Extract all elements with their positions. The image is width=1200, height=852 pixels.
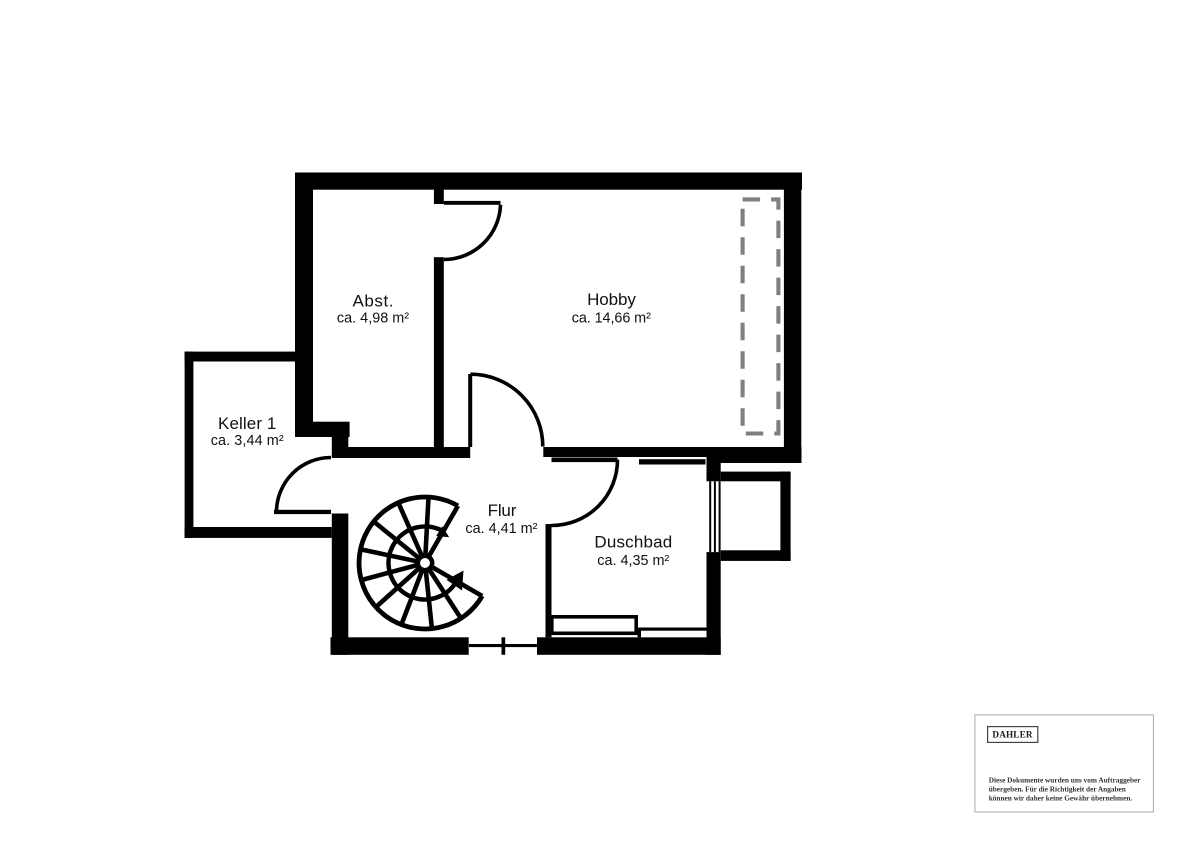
svg-text:ca. 14,66 m²: ca. 14,66 m² [572, 310, 651, 326]
svg-text:übergeben. Für die Richtigkeit: übergeben. Für die Richtigkeit der Angab… [989, 785, 1126, 794]
svg-text:ca. 4,41 m²: ca. 4,41 m² [465, 521, 537, 537]
svg-text:Flur: Flur [488, 501, 517, 520]
svg-text:ca. 3,44 m²: ca. 3,44 m² [211, 433, 284, 449]
svg-text:können wir daher keine Gewähr: können wir daher keine Gewähr übernehmen… [989, 794, 1133, 803]
svg-text:ca. 4,35 m²: ca. 4,35 m² [597, 553, 669, 569]
svg-text:DAHLER: DAHLER [992, 730, 1033, 740]
svg-text:Keller 1: Keller 1 [218, 414, 276, 433]
svg-text:ca. 4,98 m²: ca. 4,98 m² [337, 310, 409, 326]
svg-text:Hobby: Hobby [587, 290, 636, 309]
svg-text:Diese Dokumente wurden uns vom: Diese Dokumente wurden uns vom Auftragge… [989, 776, 1142, 785]
svg-text:Abst.: Abst. [353, 291, 394, 310]
svg-text:Duschbad: Duschbad [594, 533, 672, 552]
